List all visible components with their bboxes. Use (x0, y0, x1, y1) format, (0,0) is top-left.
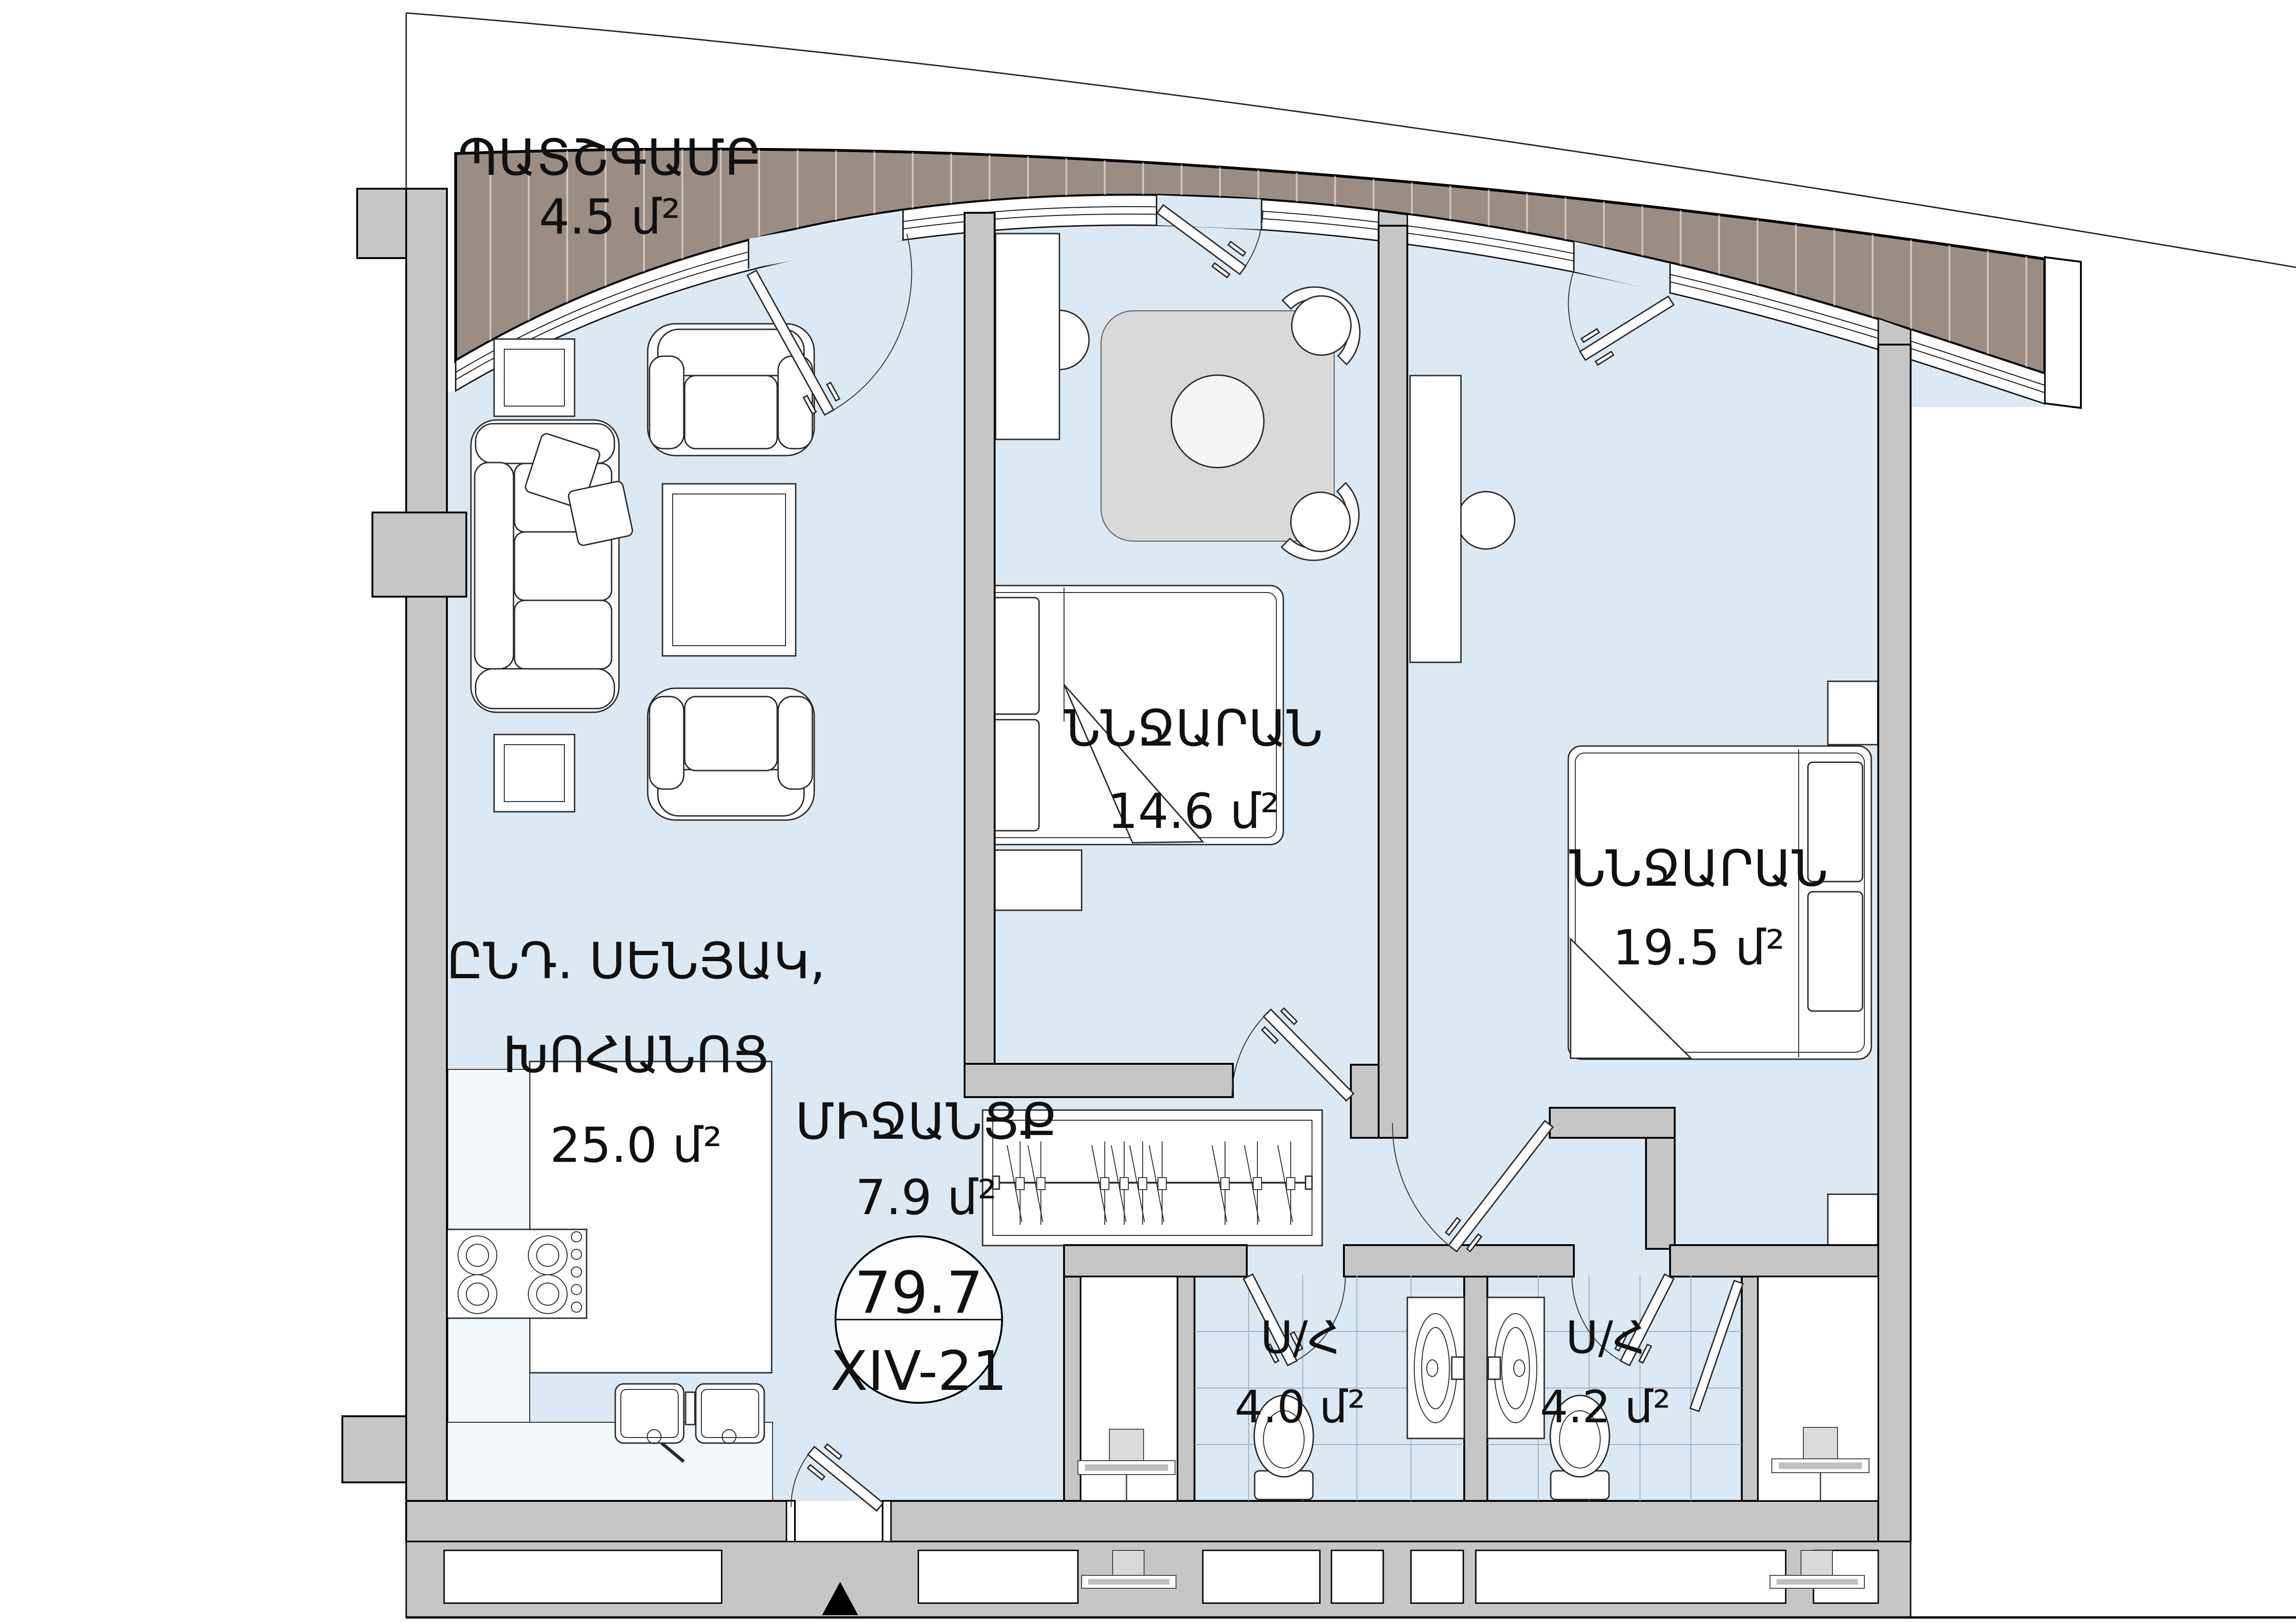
bathroom2-label: Ս/Հ (1566, 1312, 1645, 1364)
common-corridor-band (406, 1542, 2296, 1617)
round-table (1171, 375, 1264, 468)
hallway-area: 7.9 մ² (855, 1169, 997, 1226)
bedroom1-area: 14.6 մ² (1108, 783, 1280, 839)
bathroom1-area: 4.0 մ² (1235, 1381, 1366, 1433)
unit-badge: 79.7 XIV-21 (830, 1236, 1007, 1403)
sink (1487, 1297, 1544, 1438)
desk (1410, 376, 1461, 662)
kitchen-cabinet-block (530, 1061, 772, 1373)
living-area: 25.0 մ² (550, 1117, 722, 1173)
armchair (648, 688, 814, 820)
bed (1568, 746, 1871, 1059)
hallway-label: ՄԻՋԱՆՑՔ (795, 1093, 1058, 1151)
balcony-area: 4.5 մ² (539, 189, 681, 245)
bedroom2-label: ՆՆՋԱՐԱՆ (1569, 840, 1828, 898)
balcony-label: ՊԱՏՇԳԱՄԲ (458, 129, 761, 187)
sofa (471, 420, 633, 712)
coffee-table (662, 484, 796, 656)
side-table (494, 734, 575, 812)
side-table (494, 339, 575, 416)
bathroom2-area: 4.2 մ² (1540, 1381, 1671, 1433)
bedroom2-area: 19.5 մ² (1613, 919, 1785, 976)
living-label-2: ԽՈՀԱՆՈՑ (503, 1026, 770, 1084)
badge-total-area: 79.7 (854, 1259, 983, 1327)
bathroom1-label: Ս/Հ (1260, 1312, 1339, 1364)
exterior-mask-right (1910, 407, 2296, 1501)
desk (996, 234, 1059, 439)
bedroom1-label: ՆՆՋԱՐԱՆ (1064, 700, 1323, 758)
badge-unit-number: XIV-21 (830, 1339, 1007, 1403)
desk-stool (1457, 492, 1515, 549)
floor-plan: ՊԱՏՇԳԱՄԲ 4.5 մ² ԸՆԴ. ՍԵՆՅԱԿ, ԽՈՀԱՆՈՑ 25.… (0, 0, 2296, 1623)
sink (1407, 1297, 1464, 1438)
stove (442, 1229, 587, 1318)
nightstand (1828, 681, 1878, 745)
living-label-1: ԸՆԴ. ՍԵՆՅԱԿ, (446, 932, 825, 990)
balcony-end-cap (2045, 257, 2081, 408)
